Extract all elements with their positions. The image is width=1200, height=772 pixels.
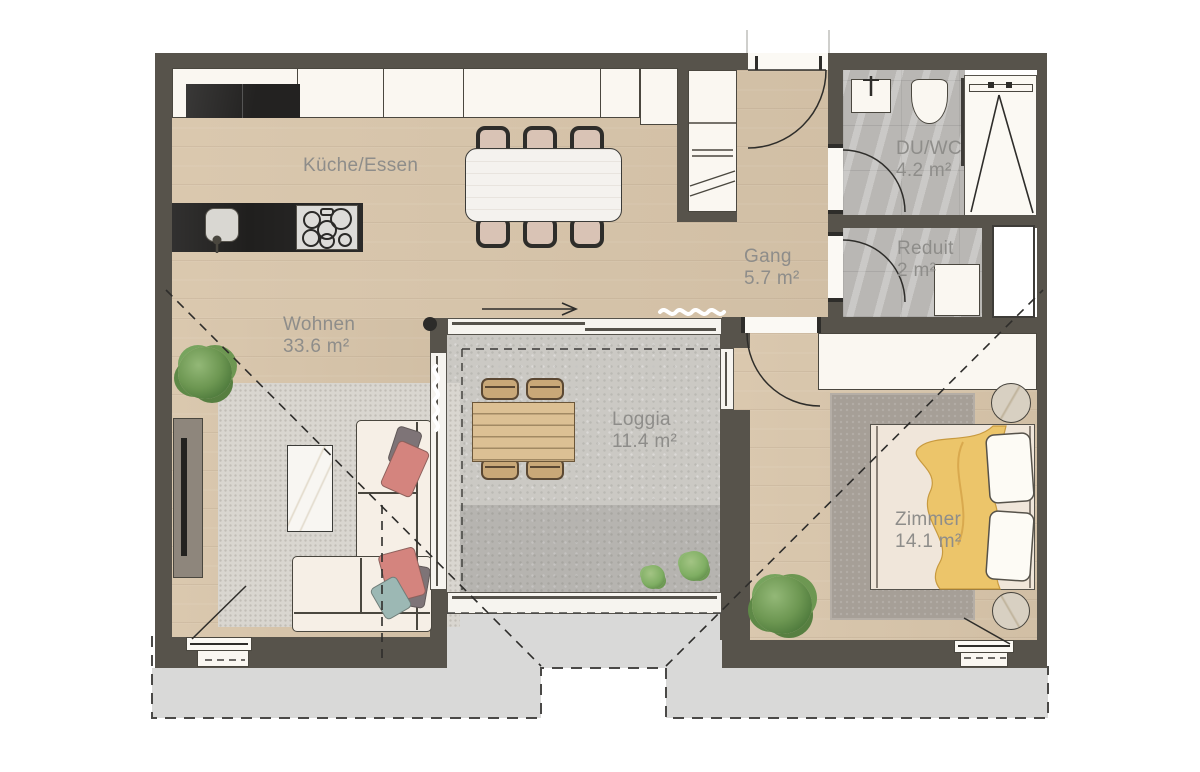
room-name: DU/WC	[896, 138, 962, 159]
coffee-table	[287, 445, 333, 532]
window-loggia-right	[720, 348, 734, 410]
plant-icon	[752, 576, 812, 634]
reduit-door-opening	[828, 236, 843, 298]
living-balcony-step	[197, 650, 249, 667]
entrance-landing-line	[828, 30, 830, 53]
dining-table	[465, 148, 622, 222]
room-name: Reduit	[897, 238, 954, 259]
loggia-chair	[481, 378, 519, 400]
wall-loggia-left-bottom	[430, 590, 447, 637]
bathroom-door-opening	[828, 148, 843, 210]
sliding-panel-left	[452, 322, 585, 325]
room-name: Gang	[744, 246, 800, 267]
apron-notch	[541, 668, 666, 718]
cabinet-divider	[600, 68, 601, 118]
counter-joint	[242, 84, 243, 118]
bathroom-door-jamb	[828, 144, 843, 148]
loggia-chair	[526, 378, 564, 400]
room-area: 33.6 m²	[283, 336, 355, 357]
entrance-landing-line	[746, 30, 748, 53]
room-name: Wohnen	[283, 314, 355, 335]
room-name: Loggia	[612, 409, 677, 430]
shaft	[992, 225, 1035, 318]
sideboard-slit	[181, 438, 187, 556]
shower-fitting	[1006, 82, 1012, 88]
sink-icon	[205, 208, 239, 242]
room-area: 5.7 m²	[744, 268, 800, 289]
window-loggia-left	[430, 352, 447, 590]
bed	[870, 424, 1035, 590]
room-area: 11.4 m²	[612, 431, 677, 452]
reduit-door-jamb	[828, 232, 843, 236]
loggia-sliding-window	[447, 318, 722, 335]
wall-loggia-right	[720, 410, 750, 640]
bush-icon	[641, 565, 665, 589]
bathroom-door-jamb	[828, 210, 843, 214]
room-label-wohnen: Wohnen 33.6 m²	[283, 314, 355, 357]
washbasin-icon	[851, 79, 891, 113]
bedroom-balcony-step	[960, 652, 1008, 667]
cabinet-divider	[383, 68, 384, 118]
room-area: 4.2 m²	[896, 160, 962, 181]
sofa-seam	[294, 612, 430, 614]
wall-right	[1037, 70, 1047, 640]
loggia-balustrade-glass	[452, 596, 717, 599]
kitchen-counter-dark	[186, 84, 300, 118]
wall-under-wardrobe	[677, 212, 737, 222]
loggia-shadow	[447, 505, 722, 592]
entry-wardrobe	[688, 70, 737, 212]
kitchen-tall-cabinet	[640, 68, 678, 125]
exterior-apron-loggia	[447, 614, 722, 668]
nightstand	[992, 592, 1030, 630]
shower	[964, 75, 1037, 216]
room-label-reduit: Reduit 2 m²	[897, 238, 954, 281]
living-balcony-door-glass	[190, 643, 248, 645]
bed-headboard-line	[1029, 426, 1031, 588]
room-label-duwc: DU/WC 4.2 m²	[896, 138, 962, 181]
wall-left	[155, 70, 172, 668]
cooktop-icon	[296, 205, 358, 250]
room-label-zimmer: Zimmer 14.1 m²	[895, 509, 962, 552]
bed-foot-line	[876, 426, 878, 588]
wall-reduit-shaft	[982, 228, 992, 318]
floor-plan-canvas: Küche/Essen Wohnen 33.6 m² Gang 5.7 m² D…	[0, 0, 1200, 772]
window-loggia-right-glass	[725, 352, 727, 406]
cabinet-divider	[463, 68, 464, 118]
bedroom-door-jamb	[817, 317, 821, 333]
bedroom-balcony-door-glass	[958, 645, 1010, 647]
bedroom-door-jamb	[741, 317, 745, 333]
shower-rail	[969, 84, 1033, 92]
room-area: 2 m²	[897, 260, 954, 281]
entrance-jamb-left	[755, 56, 758, 70]
shower-fitting	[988, 82, 994, 88]
window-loggia-left-glass	[436, 356, 438, 586]
reduit-door-jamb	[828, 298, 843, 302]
sideboard	[173, 418, 203, 578]
sliding-panel-right	[585, 328, 716, 331]
loggia-table	[472, 402, 575, 462]
sofa-seam	[360, 558, 362, 612]
room-label-kueche-essen: Küche/Essen	[303, 155, 418, 176]
column-dot	[423, 317, 437, 331]
room-label-loggia: Loggia 11.4 m²	[612, 409, 677, 452]
entrance-jamb-right	[819, 56, 822, 70]
room-label-gang: Gang 5.7 m²	[744, 246, 800, 289]
bush-icon	[679, 551, 709, 581]
nightstand	[991, 383, 1031, 423]
room-name: Zimmer	[895, 509, 962, 530]
bedroom-wardrobe	[818, 333, 1037, 390]
room-name: Küche/Essen	[303, 155, 418, 176]
entrance-opening	[748, 53, 828, 70]
bedroom-door-opening	[745, 317, 817, 333]
plant-icon	[178, 347, 232, 399]
room-area: 14.1 m²	[895, 531, 962, 552]
wall-gang-left	[677, 70, 688, 222]
wall-stub-loggia-right	[720, 333, 750, 348]
